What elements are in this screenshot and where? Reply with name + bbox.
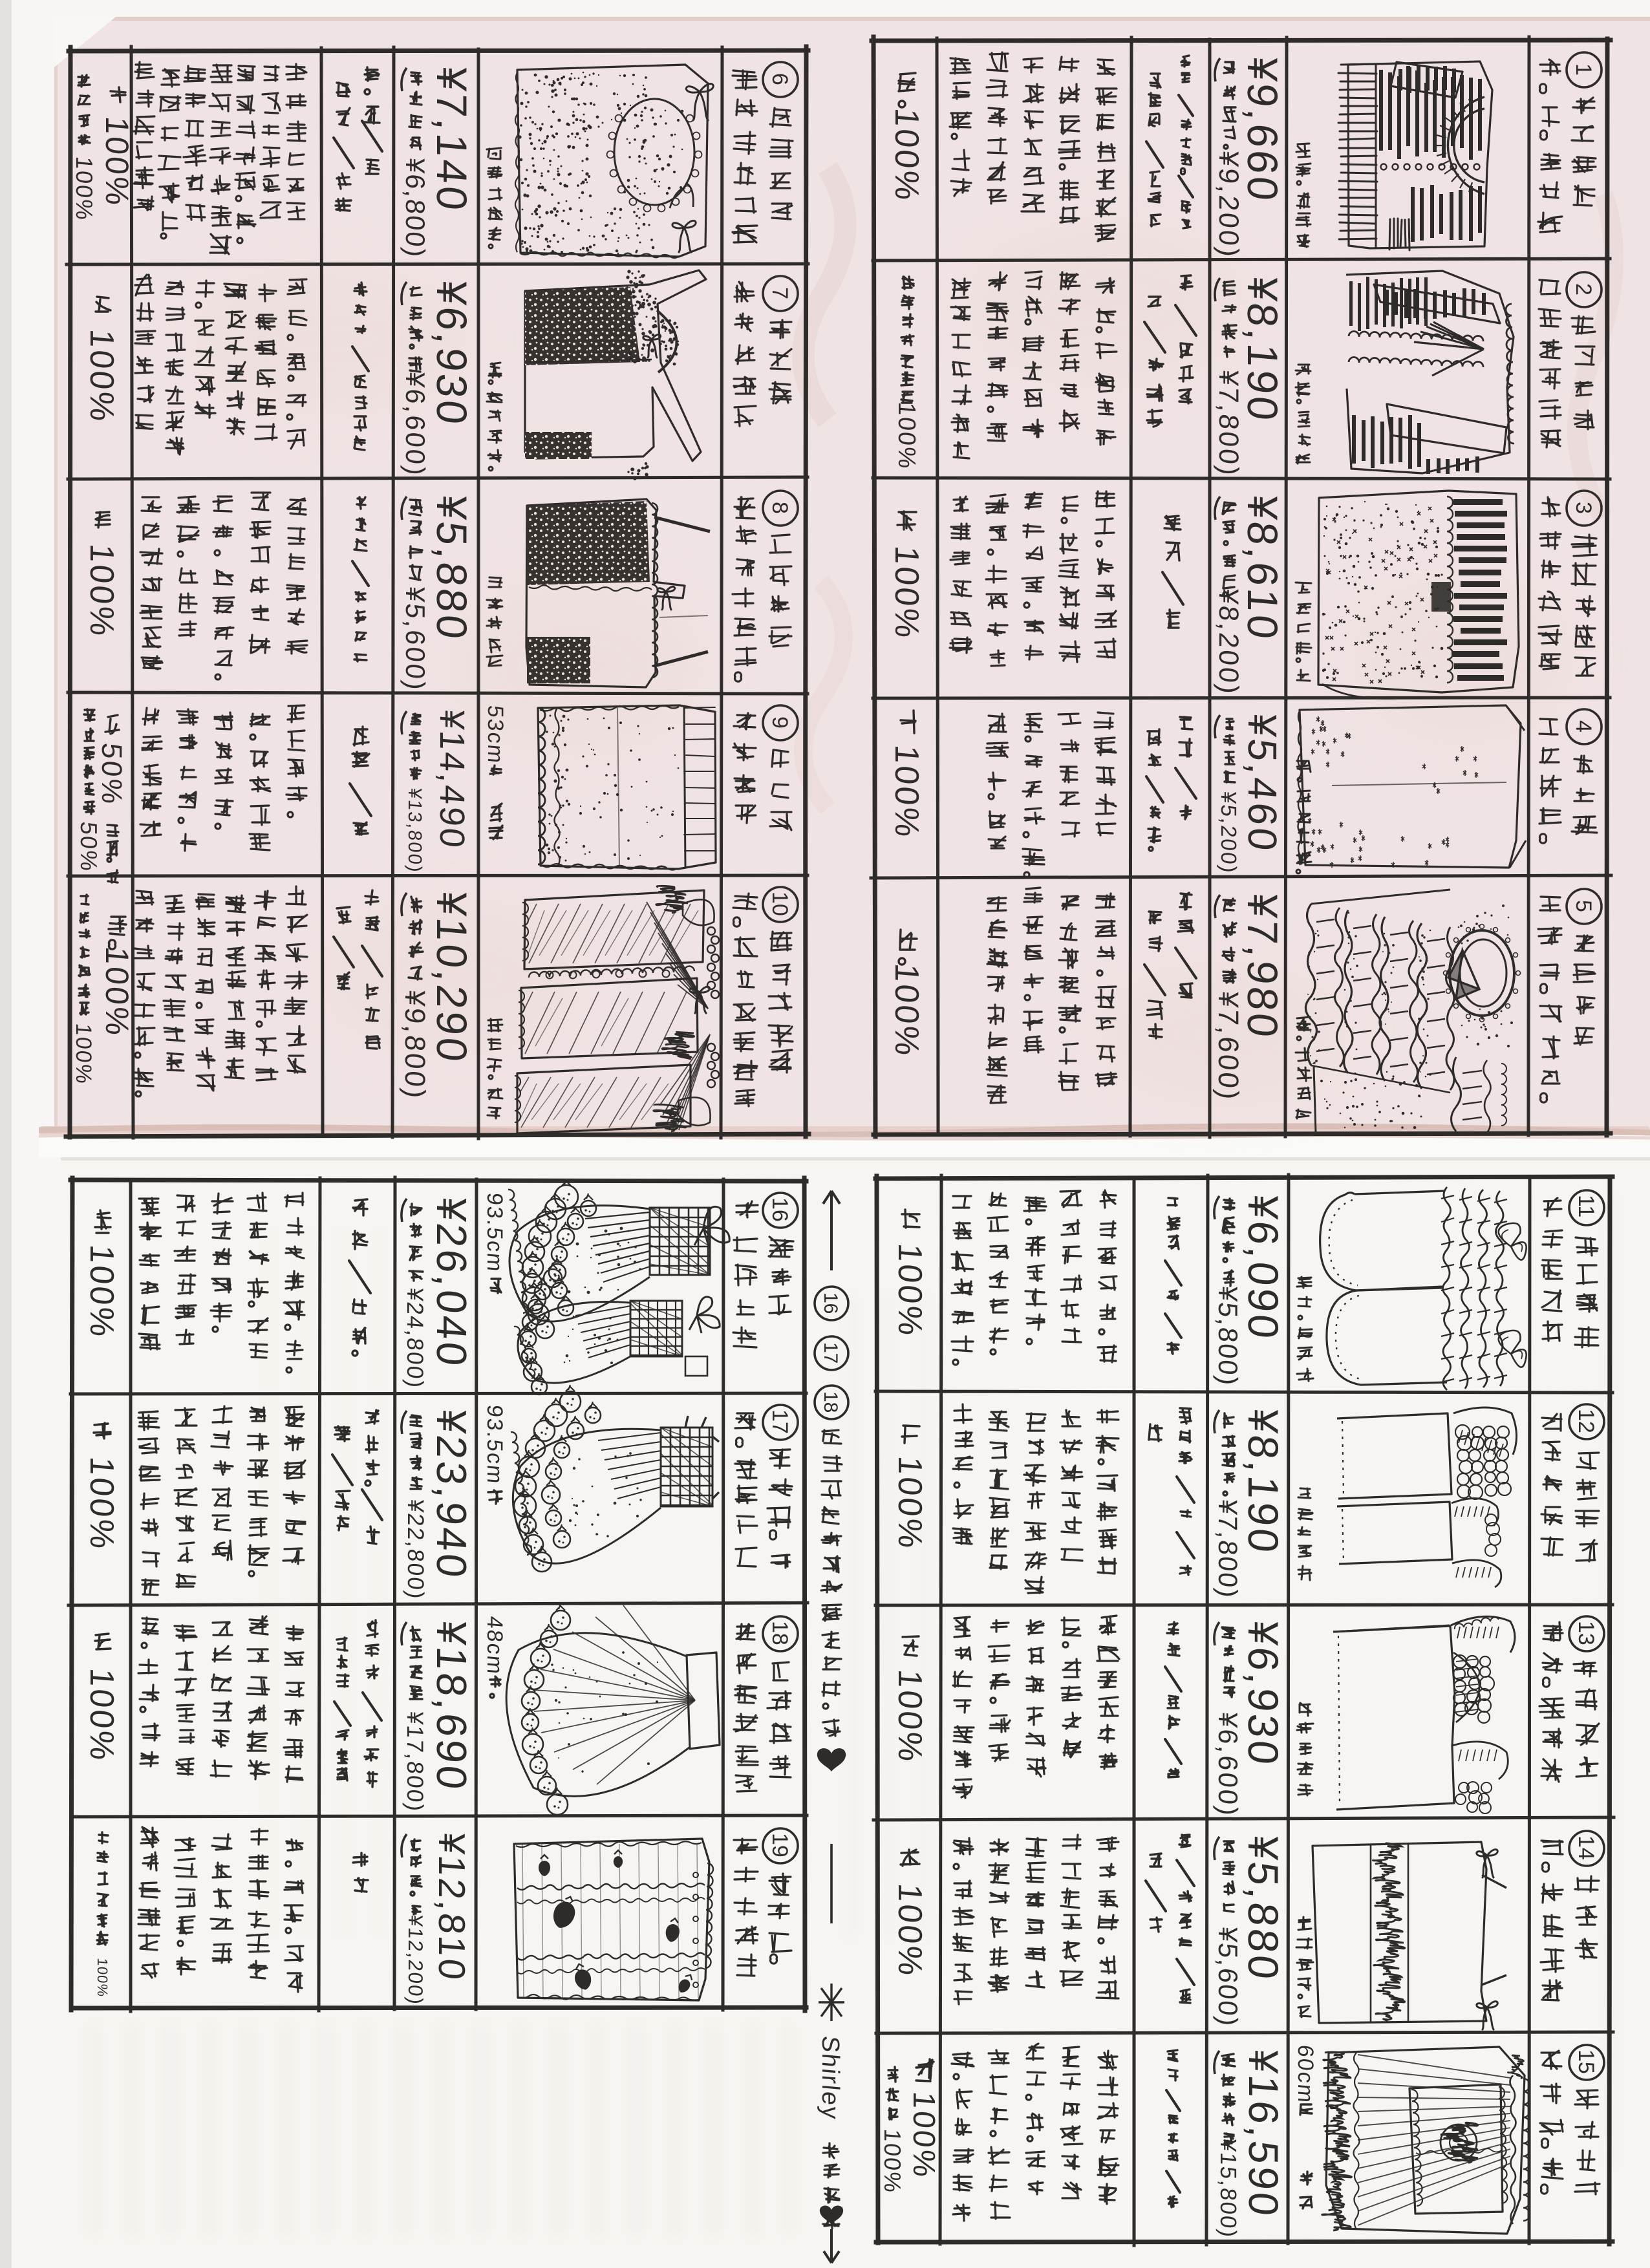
svg-text:100%: 100% — [71, 155, 98, 222]
svg-text:9: 9 — [767, 716, 792, 729]
svg-text:100%: 100% — [94, 1958, 111, 1998]
svg-text:¥6,090: ¥6,090 — [1239, 1192, 1287, 1343]
svg-text:¥12,810: ¥12,810 — [431, 1830, 472, 1984]
svg-text:7: 7 — [767, 287, 792, 299]
svg-text:¥6,930: ¥6,930 — [1239, 1618, 1287, 1769]
svg-text:11: 11 — [1574, 1195, 1598, 1217]
svg-text:100%: 100% — [888, 744, 925, 840]
svg-text:100%: 100% — [879, 2128, 906, 2195]
svg-text:¥5,880: ¥5,880 — [1239, 1833, 1287, 1984]
svg-text:18: 18 — [820, 1391, 841, 1413]
svg-text:13: 13 — [1574, 1621, 1598, 1645]
svg-text:¥5,800): ¥5,800) — [1213, 1284, 1243, 1387]
svg-text:¥7,800): ¥7,800) — [1213, 1497, 1243, 1600]
svg-text:¥9,200): ¥9,200) — [1213, 149, 1244, 260]
svg-text:¥8,200): ¥8,200) — [1213, 586, 1244, 697]
svg-text:93.5cm: 93.5cm — [482, 1404, 507, 1486]
svg-text:¥5,600): ¥5,600) — [1213, 1925, 1243, 2028]
svg-text:¥6,600): ¥6,600) — [400, 370, 431, 478]
svg-text:¥6,930: ¥6,930 — [427, 278, 475, 429]
svg-text:100%: 100% — [83, 328, 120, 425]
svg-text:¥23,940: ¥23,940 — [428, 1407, 475, 1582]
svg-text:15: 15 — [1574, 2049, 1598, 2074]
svg-text:1: 1 — [1571, 63, 1596, 76]
svg-text:¥8,190: ¥8,190 — [1239, 1406, 1287, 1557]
svg-text:Shirley: Shirley — [817, 2035, 844, 2121]
svg-text:8: 8 — [767, 502, 792, 514]
svg-text:3: 3 — [1571, 502, 1596, 514]
svg-text:¥16,590: ¥16,590 — [1240, 2047, 1287, 2220]
svg-text:100%: 100% — [83, 1243, 120, 1340]
svg-text:100%: 100% — [888, 962, 925, 1059]
svg-text:17: 17 — [767, 1409, 792, 1434]
svg-text:100%: 100% — [99, 945, 135, 1039]
svg-text:¥18,690: ¥18,690 — [428, 1618, 475, 1794]
svg-text:¥5,880: ¥5,880 — [427, 493, 475, 643]
svg-text:100%: 100% — [891, 1882, 928, 1979]
svg-text:53cm: 53cm — [483, 704, 508, 765]
svg-text:¥24,800): ¥24,800) — [402, 1286, 428, 1390]
svg-text:100%: 100% — [83, 1667, 120, 1764]
svg-text:60cm: 60cm — [1293, 2044, 1318, 2104]
svg-text:6: 6 — [767, 73, 792, 85]
svg-text:18: 18 — [767, 1621, 792, 1645]
svg-text:¥17,800): ¥17,800) — [402, 1709, 428, 1813]
svg-text:100%: 100% — [891, 1455, 928, 1552]
svg-text:¥15,800): ¥15,800) — [1216, 2137, 1241, 2240]
svg-text:¥22,800): ¥22,800) — [403, 1497, 429, 1601]
svg-text:¥6,600): ¥6,600) — [1213, 1710, 1243, 1819]
svg-text:93.5cm: 93.5cm — [482, 1192, 507, 1274]
svg-text:4: 4 — [1571, 720, 1596, 733]
svg-text:¥8,190: ¥8,190 — [1238, 274, 1286, 425]
svg-text:16: 16 — [767, 1197, 792, 1222]
svg-text:¥7,140: ¥7,140 — [427, 64, 475, 215]
svg-text:¥5,460: ¥5,460 — [1239, 711, 1285, 855]
svg-text:16: 16 — [820, 1292, 841, 1314]
svg-text:12: 12 — [1574, 1409, 1598, 1433]
svg-text:¥5,200): ¥5,200) — [1216, 789, 1240, 875]
svg-text:100%: 100% — [894, 401, 921, 471]
svg-text:100%: 100% — [891, 1242, 928, 1339]
svg-text:100%: 100% — [99, 115, 135, 209]
svg-text:¥9,660: ¥9,660 — [1238, 54, 1286, 205]
svg-text:100%: 100% — [906, 2090, 941, 2180]
svg-text:2: 2 — [1571, 283, 1596, 295]
svg-text:¥9,800): ¥9,800) — [399, 988, 431, 1101]
svg-text:50%: 50% — [76, 820, 102, 873]
svg-text:100%: 100% — [83, 1455, 120, 1552]
svg-text:¥13,800): ¥13,800) — [404, 786, 425, 874]
svg-text:5: 5 — [1571, 900, 1596, 912]
svg-text:100%: 100% — [888, 544, 925, 641]
svg-text:19: 19 — [767, 1833, 792, 1857]
svg-text:¥8,610: ¥8,610 — [1238, 493, 1286, 643]
svg-text:50%: 50% — [96, 742, 127, 807]
svg-text:¥14,490: ¥14,490 — [433, 707, 471, 851]
svg-text:¥7,980: ¥7,980 — [1238, 891, 1286, 1042]
svg-text:14: 14 — [1574, 1835, 1598, 1860]
svg-text:¥6,800): ¥6,800) — [400, 156, 431, 259]
svg-text:¥12,200): ¥12,200) — [404, 1913, 427, 2006]
svg-text:¥7,800): ¥7,800) — [1213, 368, 1244, 478]
svg-text:100%: 100% — [888, 107, 925, 204]
svg-text:100%: 100% — [891, 1668, 928, 1765]
svg-text:100%: 100% — [71, 1022, 96, 1086]
svg-text:¥7,600): ¥7,600) — [1212, 989, 1244, 1102]
svg-text:17: 17 — [820, 1342, 841, 1364]
svg-text:10: 10 — [767, 892, 792, 916]
svg-text:¥26,040: ¥26,040 — [428, 1195, 475, 1371]
svg-text:100%: 100% — [83, 542, 120, 639]
svg-text:¥5,600): ¥5,600) — [400, 584, 431, 693]
svg-text:48cm: 48cm — [482, 1615, 507, 1676]
svg-text:¥10,290: ¥10,290 — [427, 889, 475, 1066]
